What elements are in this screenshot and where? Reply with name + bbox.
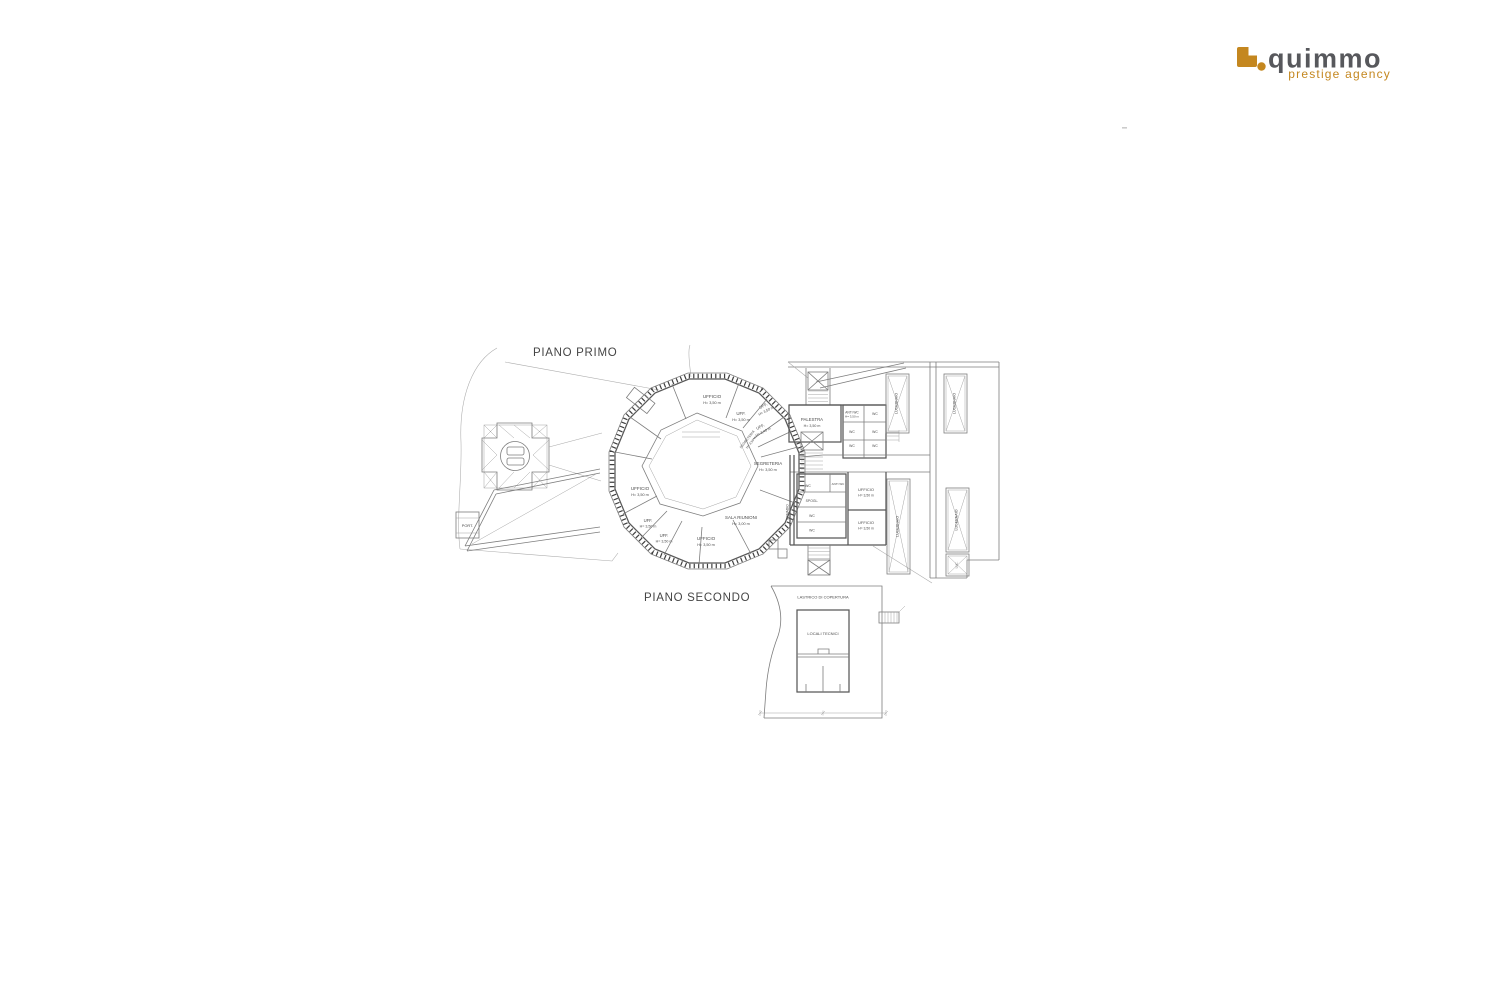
right-wing: PALESTRA H= 3,50 m ANTI WC H= 3,50 m WC …: [786, 362, 1000, 583]
room-height-ufficio-wing2: H= 3,50 m: [858, 527, 874, 531]
room-label-port: PORT.: [462, 523, 473, 528]
room-label-wc-u1: WC: [872, 412, 878, 416]
skylight-label-small: LUC.: [955, 561, 959, 568]
room-label-wc-l3: WC: [809, 529, 815, 533]
room-label-wc-u5: WC: [872, 444, 878, 448]
room-height-ufficio-top: H= 3,50 m: [703, 401, 721, 405]
room-height-anti-wc-upper: H= 3,50 m: [845, 415, 859, 419]
plan-piano-secondo: PIANO SECONDO LASTRICO DI COPERTURA LOCA…: [644, 586, 905, 718]
room-label-sala-riunioni: SALA RIUNIONI: [725, 515, 757, 520]
room-height-uff-bottomleft2: H= 3,50 m: [656, 540, 673, 544]
room-label-uff-topright: UFF.: [736, 411, 745, 416]
piano-secondo-title: PIANO SECONDO: [644, 592, 750, 604]
room-label-ufficio-bottom: UFFICIO: [697, 536, 716, 541]
room-label-spogliatoio: SPOGL.: [806, 499, 819, 503]
skylight-small: LUC.: [946, 554, 969, 576]
service-block-lower: WC ANTI WC SPOGL. WC WC ARMADIO: [786, 455, 847, 545]
piano-primo-title: PIANO PRIMO: [533, 347, 617, 359]
room-label-ufficio-wing2: UFFICIO: [858, 520, 874, 525]
room-label-wc-u3: WC: [872, 430, 878, 434]
room-label-armadio: ARMADIO: [786, 504, 790, 520]
palestra-room: PALESTRA H= 3,50 m: [789, 405, 886, 442]
room-height-palestra: H= 3,50 m: [804, 424, 821, 428]
room-height-ufficio-bottom: H= 3,50 m: [697, 543, 715, 547]
skylight-label-c: LUCERNAIO: [896, 516, 900, 537]
room-label-anti-wc-lower: ANTI WC: [832, 482, 845, 486]
stray-mark: [1122, 127, 1127, 129]
room-label-wc-l1: WC: [805, 484, 811, 488]
vestibule: [626, 387, 654, 413]
room-height-uff-bottomleft1: H= 3,50 m: [640, 525, 657, 529]
room-label-wc-u2: WC: [849, 430, 855, 434]
floor-plan-image: quimmo prestige agency PIANO PRIMO PORT.: [0, 0, 1500, 1000]
skylight-a: LUCERNAIO: [886, 374, 909, 433]
technical-rooms: LOCALI TECNICI: [797, 610, 849, 692]
tower-block: [482, 423, 602, 490]
skylight-c: LUCERNAIO: [887, 479, 910, 574]
room-label-ufficio-wing1: UFFICIO: [858, 487, 874, 492]
room-label-ufficio-left: UFFICIO: [631, 486, 650, 491]
wc-block-upper: ANTI WC H= 3,50 m WC WC WC WC WC: [843, 405, 899, 458]
room-height-segreteria: H= 3,50 m: [759, 468, 777, 472]
room-label-uff-bottomleft2: UFF.: [660, 533, 669, 538]
roof-terrace-outline: LASTRICO DI COPERTURA: [764, 586, 882, 718]
logo-tagline-text: prestige agency: [1288, 67, 1391, 81]
logo-dot-icon: [1257, 62, 1265, 70]
room-label-segreteria: SEGRETERIA: [754, 461, 782, 466]
label-locali-tecnici: LOCALI TECNICI: [807, 631, 838, 636]
room-label-ufficio-top: UFFICIO: [703, 394, 722, 399]
skylight-d: LUCERNAIO: [946, 488, 969, 552]
skylight-label-a: LUCERNAIO: [895, 393, 899, 414]
room-height-sala-riunioni: H= 3,00 m: [732, 522, 750, 526]
label-lastrico: LASTRICO DI COPERTURA: [797, 595, 849, 600]
room-label-palestra: PALESTRA: [801, 417, 823, 422]
room-height-ufficio-wing1: H= 3,50 m: [858, 494, 874, 498]
stairs-lower: [808, 545, 830, 575]
ramp-strip: [465, 469, 600, 551]
floor-plan-page: quimmo prestige agency PIANO PRIMO PORT.: [0, 0, 1500, 1000]
plan-piano-primo: PIANO PRIMO PORT.: [456, 345, 999, 583]
dimension-line: [758, 710, 888, 716]
room-label-wc-l2: WC: [809, 514, 815, 518]
room-height-uff-topright: H= 3,50 m: [732, 418, 750, 422]
room-label-uff-bottomleft1: UFF.: [644, 518, 653, 523]
skylight-b: LUCERNAIO: [944, 374, 967, 433]
skylight-label-d: LUCERNAIO: [955, 509, 959, 530]
room-label-wc-u4: WC: [849, 444, 855, 448]
roof-ledge-hatch: [879, 606, 905, 623]
skylight-label-b: LUCERNAIO: [953, 393, 957, 414]
room-height-ufficio-left: H= 3,50 m: [631, 493, 649, 497]
logo-square-notch: [1249, 45, 1259, 56]
logo: quimmo prestige agency: [1237, 44, 1391, 82]
